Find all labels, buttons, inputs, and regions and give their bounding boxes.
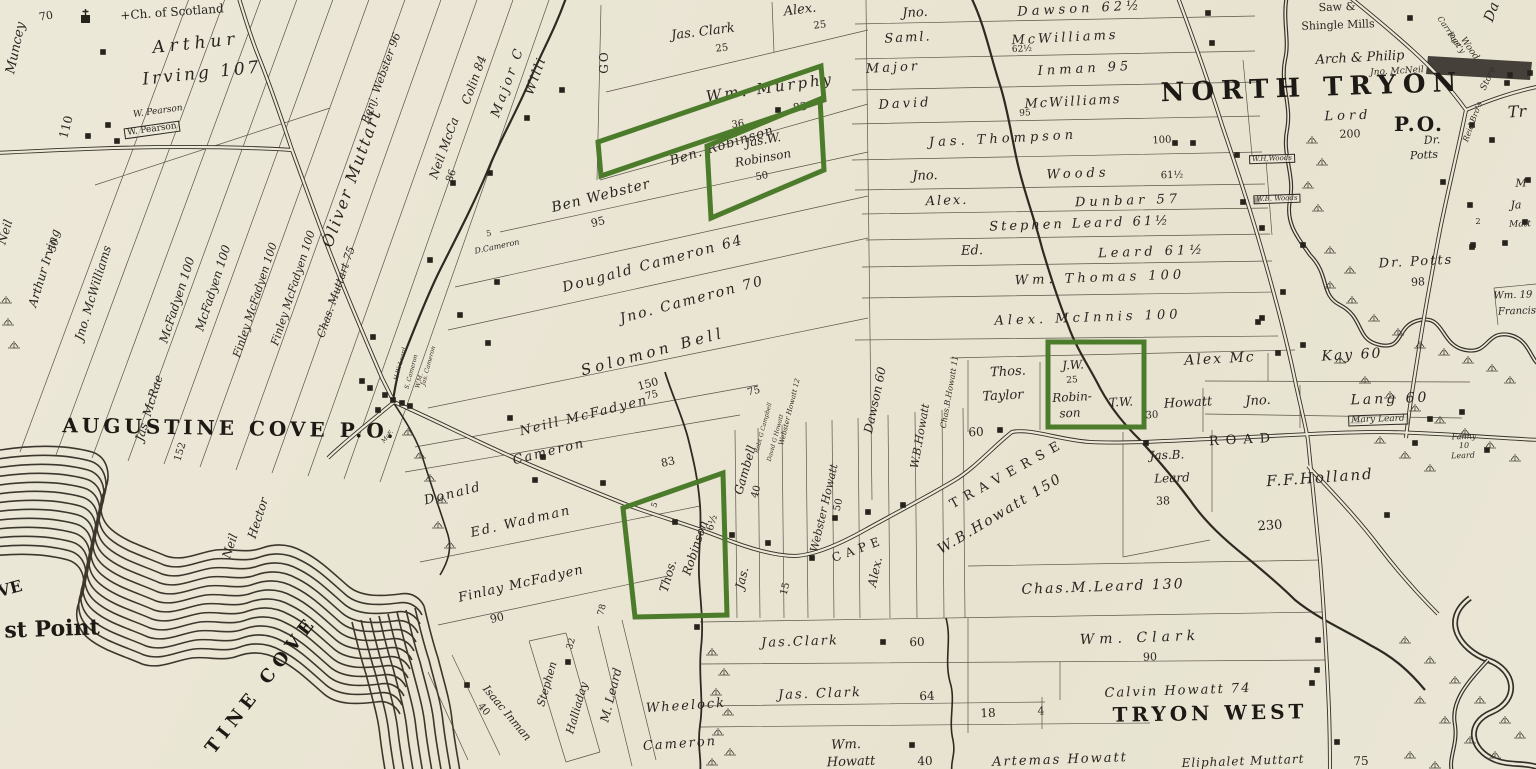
j-w-robinson-plot-highlight[interactable] xyxy=(1048,342,1144,427)
highlight-overlay xyxy=(0,0,1536,769)
thos-robinson-plot-highlight[interactable] xyxy=(623,473,727,617)
ben-robinson-plot-highlight[interactable] xyxy=(598,66,824,176)
jas-w-robinson-plot-highlight[interactable] xyxy=(707,99,824,218)
historical-map: Muncey70+Ch. of ScotlandArthurIrving 107… xyxy=(0,0,1536,769)
